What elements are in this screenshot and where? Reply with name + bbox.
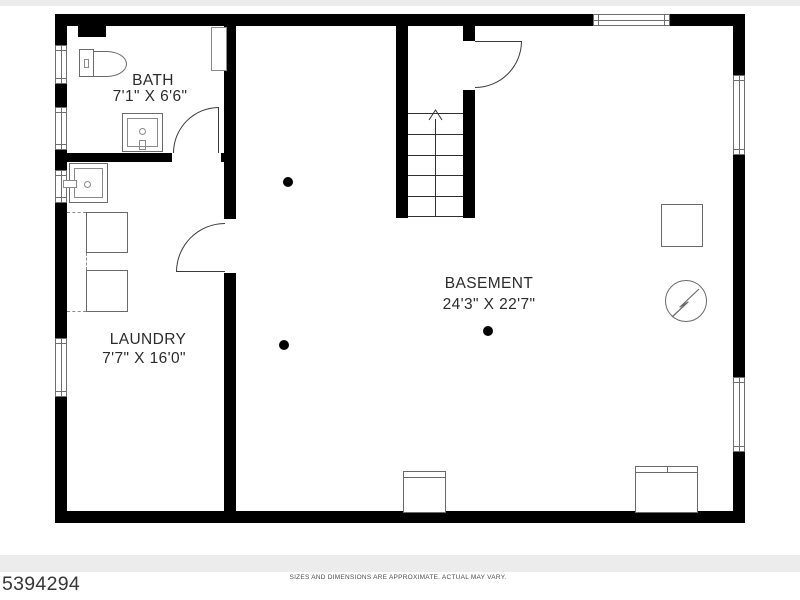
door-swing-icon	[475, 41, 522, 88]
laundry-sink-drain	[84, 181, 91, 188]
room-label-basement: BASEMENT	[445, 275, 533, 293]
support-column-icon	[279, 340, 289, 350]
up-arrow-icon	[427, 108, 444, 122]
top-edge-band	[0, 0, 800, 6]
mls-number: 5394294	[2, 573, 80, 596]
wall-interior-lower	[224, 273, 236, 513]
room-dimensions-basement: 24'3" X 22'7"	[443, 296, 536, 314]
room-label-laundry: LAUNDRY	[110, 331, 187, 349]
door-swing-icon	[176, 223, 225, 272]
appliance-icon	[635, 466, 698, 513]
wall-stair-right-upper	[463, 26, 475, 41]
counter-dashed-line	[67, 311, 86, 312]
door-swing-icon	[173, 107, 219, 153]
laundry-sink-handle	[63, 180, 77, 188]
appliance-icon	[403, 471, 446, 513]
counter-dashed-line	[86, 253, 87, 270]
wall-bath-bottom-left	[67, 153, 172, 162]
window-icon	[733, 377, 745, 452]
toilet-bowl	[93, 51, 127, 77]
wall-left	[55, 14, 67, 523]
room-dimensions-bath: 7'1" X 6'6"	[113, 88, 188, 106]
lightning-bolt-icon	[666, 281, 706, 321]
disclaimer-text: SIZES AND DIMENSIONS ARE APPROXIMATE. AC…	[290, 574, 507, 581]
equipment-box-icon	[661, 204, 703, 247]
washer-icon	[86, 212, 128, 253]
electrical-meter-icon	[665, 280, 707, 322]
room-dimensions-laundry: 7'7" X 16'0"	[102, 350, 186, 368]
wall-stair-right-lower	[463, 90, 475, 218]
support-column-icon	[483, 326, 493, 336]
toilet-flush-button	[84, 59, 89, 68]
wall-cabinet-icon	[211, 27, 227, 71]
floor-plan: BATH 7'1" X 6'6" LAUNDRY 7'7" X 16'0" BA…	[0, 0, 800, 600]
window-icon	[593, 14, 670, 26]
bathroom-sink-faucet	[139, 140, 146, 150]
bathroom-sink-drain	[139, 128, 146, 135]
window-icon	[55, 45, 67, 84]
support-column-icon	[283, 177, 293, 187]
counter-dashed-line	[67, 212, 86, 213]
dryer-icon	[86, 270, 128, 312]
wall-stair-left	[396, 26, 408, 218]
window-icon	[55, 338, 67, 397]
window-icon	[55, 107, 67, 150]
wall-chimney-nib	[78, 26, 106, 37]
stair-direction-line	[435, 119, 436, 216]
window-icon	[733, 75, 745, 155]
bottom-edge-band	[0, 555, 800, 572]
